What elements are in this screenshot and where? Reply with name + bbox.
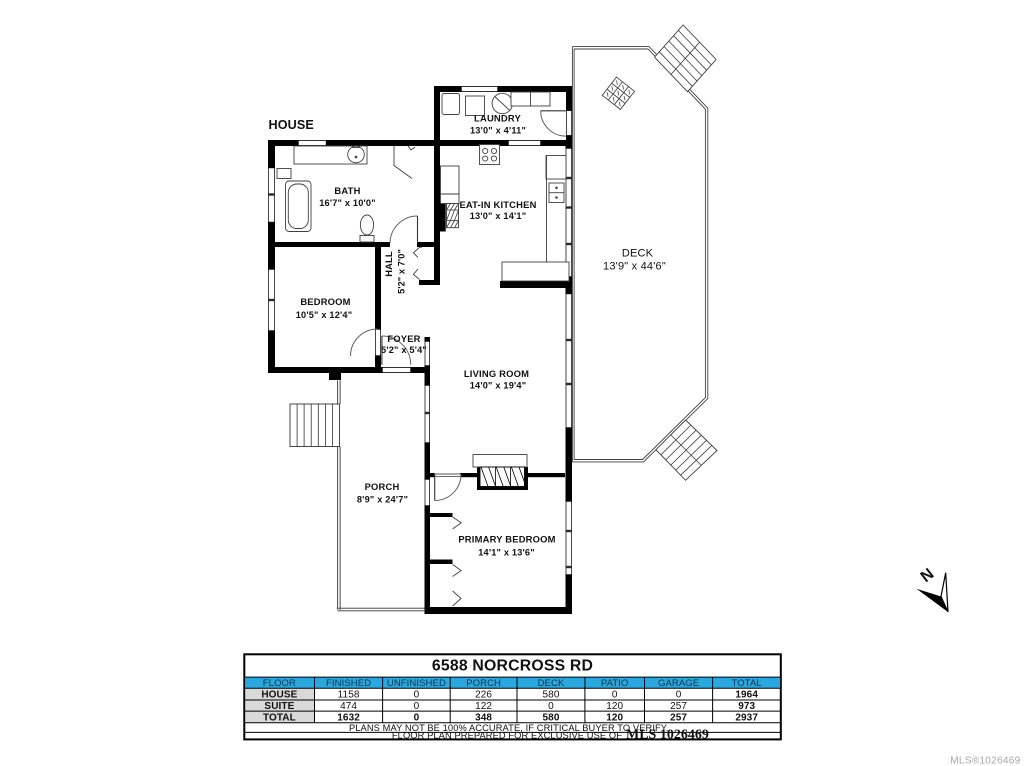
svg-text:UNFINISHED: UNFINISHED [387, 678, 446, 689]
svg-text:TOTAL: TOTAL [263, 713, 296, 724]
svg-text:GARAGE: GARAGE [658, 678, 699, 689]
svg-text:0: 0 [414, 689, 420, 700]
svg-text:PORCH: PORCH [365, 481, 400, 492]
svg-text:16'7" x 10'0": 16'7" x 10'0" [319, 198, 376, 208]
svg-text:DECK: DECK [622, 248, 654, 260]
svg-text:MLS®1026469: MLS®1026469 [950, 755, 1020, 766]
svg-text:HOUSE: HOUSE [269, 118, 314, 132]
svg-text:14'0" x 19'4": 14'0" x 19'4" [470, 381, 527, 391]
svg-text:10'5" x 12'4": 10'5" x 12'4" [296, 310, 353, 320]
svg-text:13'0" x 4'11": 13'0" x 4'11" [470, 126, 526, 136]
svg-text:120: 120 [606, 701, 623, 712]
svg-text:1158: 1158 [338, 689, 360, 700]
svg-text:LAUNDRY: LAUNDRY [474, 113, 521, 124]
svg-text:DECK: DECK [538, 678, 565, 689]
svg-text:0: 0 [548, 701, 554, 712]
svg-text:FOYER: FOYER [387, 333, 420, 344]
svg-text:14'1" x 13'6": 14'1" x 13'6" [478, 548, 535, 558]
svg-text:474: 474 [340, 701, 357, 712]
svg-text:5'2" x 7'0": 5'2" x 7'0" [397, 249, 407, 294]
svg-text:0: 0 [676, 689, 682, 700]
svg-text:226: 226 [475, 689, 492, 700]
svg-text:PORCH: PORCH [466, 678, 501, 689]
svg-text:EAT-IN KITCHEN: EAT-IN KITCHEN [459, 199, 536, 210]
svg-text:HALL: HALL [383, 251, 394, 277]
svg-text:TOTAL: TOTAL [732, 678, 762, 689]
svg-text:FLOOR: FLOOR [263, 678, 296, 689]
svg-text:13'9" x 44'6": 13'9" x 44'6" [603, 261, 666, 273]
svg-text:2937: 2937 [735, 713, 758, 724]
svg-text:257: 257 [670, 713, 687, 724]
svg-text:HOUSE: HOUSE [261, 689, 297, 700]
svg-text:580: 580 [543, 689, 560, 700]
svg-text:FLOOR PLAN PREPARED FOR EXCLUS: FLOOR PLAN PREPARED FOR EXCLUSIVE USE OF [392, 731, 622, 741]
svg-text:BEDROOM: BEDROOM [300, 296, 350, 307]
svg-text:6588 NORCROSS RD: 6588 NORCROSS RD [432, 658, 593, 675]
svg-text:0: 0 [414, 701, 420, 712]
svg-text:0: 0 [612, 689, 618, 700]
svg-text:8'9" x 24'7": 8'9" x 24'7" [357, 495, 408, 505]
svg-text:SUITE: SUITE [264, 701, 294, 712]
svg-text:5'2" x 5'4": 5'2" x 5'4" [381, 345, 427, 355]
svg-text:257: 257 [670, 701, 687, 712]
svg-text:BATH: BATH [334, 185, 360, 196]
svg-text:1964: 1964 [735, 689, 758, 700]
svg-text:FINISHED: FINISHED [326, 678, 371, 689]
svg-text:122: 122 [475, 701, 492, 712]
svg-text:13'0" x 14'1": 13'0" x 14'1" [470, 211, 527, 221]
svg-text:LIVING ROOM: LIVING ROOM [464, 368, 529, 379]
svg-text:PRIMARY BEDROOM: PRIMARY BEDROOM [458, 534, 555, 545]
svg-text:PATIO: PATIO [601, 678, 629, 689]
svg-text:MLS 1026469: MLS 1026469 [626, 727, 709, 742]
svg-text:973: 973 [738, 701, 755, 712]
